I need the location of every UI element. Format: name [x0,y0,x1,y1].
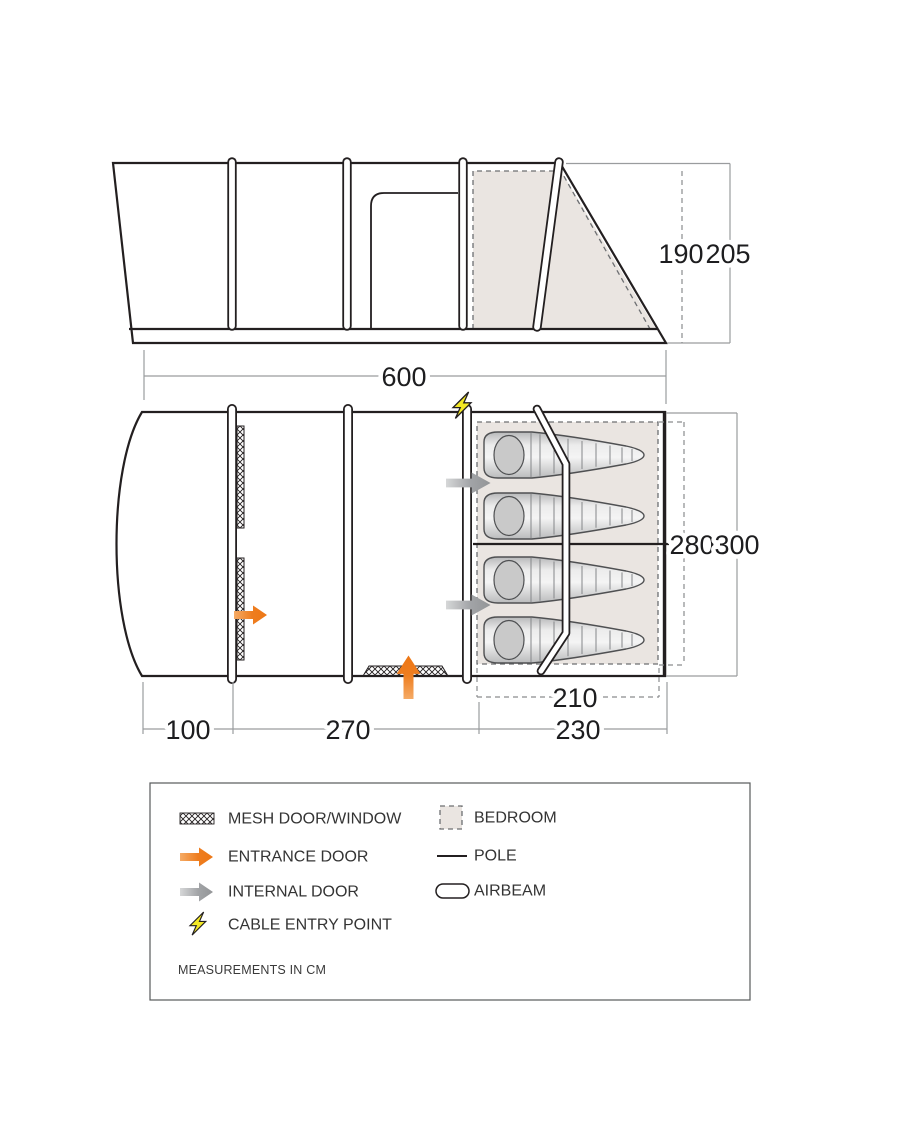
dim-outer-height: 205 [705,239,750,269]
floor-plan-view [117,392,738,734]
mesh-window [237,558,244,660]
legend-label-mesh: MESH DOOR/WINDOW [228,811,402,828]
door-outline-side [371,193,458,328]
mesh-icon [180,813,214,824]
dim-living-length: 270 [325,715,370,745]
legend-label-cable: CABLE ENTRY POINT [228,917,392,934]
airbeams-plan [232,409,467,679]
mesh-windows [237,426,448,676]
legend: MESH DOOR/WINDOW ENTRANCE DOOR INTERNAL … [150,783,750,1000]
legend-label-entrance: ENTRANCE DOOR [228,849,368,866]
dim-front-depth: 100 [165,715,210,745]
legend-label-pole: POLE [474,848,517,865]
legend-label-airbeam: AIRBEAM [474,883,546,900]
dim-length: 600 [381,362,426,392]
tent-floorplan-diagram: 190 205 600 280 300 210 100 270 230 MESH… [0,0,900,1130]
dim-bedroom-length: 230 [555,715,600,745]
legend-label-internal: INTERNAL DOOR [228,884,359,901]
diagram-canvas: 190 205 600 280 300 210 100 270 230 MESH… [0,0,900,1130]
bedroom-area-side [473,171,656,329]
dim-inner-height: 190 [658,239,703,269]
dim-outer-width: 300 [714,530,759,560]
bedroom-swatch-icon [440,806,462,829]
mesh-window [237,426,244,528]
dim-bedroom-width: 210 [552,683,597,713]
dim-inner-width: 280 [669,530,714,560]
measurements-note: MEASUREMENTS IN CM [178,963,326,977]
entrance-door-arrow [397,655,421,699]
legend-label-bedroom: BEDROOM [474,810,557,827]
side-elevation-view [113,162,730,343]
airbeam-icon [436,884,469,898]
